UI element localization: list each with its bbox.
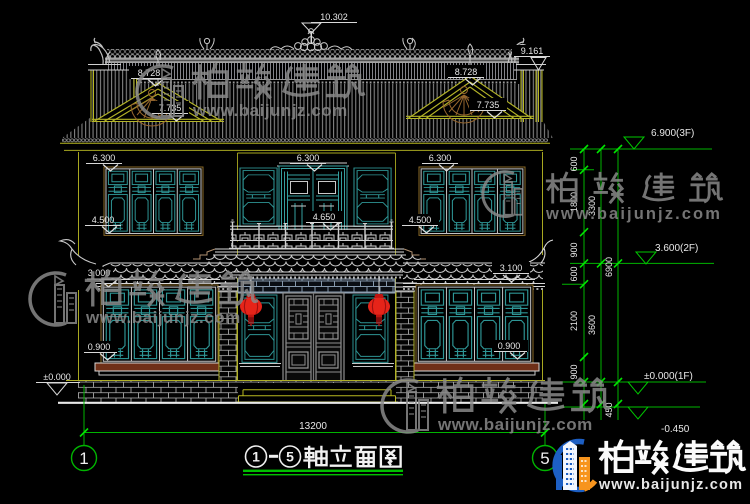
svg-text:6.300: 6.300 (93, 153, 116, 163)
svg-text:±0.000(1F): ±0.000(1F) (644, 371, 693, 382)
svg-text:3.600(2F): 3.600(2F) (655, 243, 698, 254)
svg-text:13200: 13200 (299, 421, 327, 432)
svg-text:www.baijunjz.com: www.baijunjz.com (545, 205, 722, 223)
svg-text:7.735: 7.735 (477, 100, 500, 110)
svg-text:±0.000: ±0.000 (43, 372, 70, 382)
svg-text:9.161: 9.161 (521, 46, 544, 56)
svg-text:www.baijunjz.com: www.baijunjz.com (598, 477, 743, 493)
svg-text:4.500: 4.500 (409, 215, 432, 225)
svg-text:4.500: 4.500 (92, 215, 115, 225)
svg-text:6.300: 6.300 (429, 153, 452, 163)
svg-text:5: 5 (286, 449, 294, 465)
svg-text:3.100: 3.100 (500, 263, 523, 273)
svg-text:5: 5 (540, 449, 549, 468)
svg-text:0.900: 0.900 (88, 342, 111, 352)
svg-text:1: 1 (79, 449, 88, 468)
svg-text:900: 900 (569, 364, 579, 379)
svg-text:4.650: 4.650 (313, 212, 336, 222)
svg-text:6900: 6900 (604, 257, 614, 277)
svg-text:8.728: 8.728 (455, 67, 478, 77)
svg-text:600: 600 (569, 156, 579, 171)
svg-text:2100: 2100 (569, 311, 579, 331)
svg-text:3600: 3600 (587, 315, 597, 335)
svg-text:900: 900 (569, 242, 579, 257)
svg-text:600: 600 (569, 266, 579, 281)
svg-text:10.302: 10.302 (320, 12, 348, 22)
svg-text:6.900(3F): 6.900(3F) (651, 128, 694, 139)
svg-text:1: 1 (252, 449, 260, 465)
svg-text:0.900: 0.900 (498, 341, 521, 351)
svg-text:6.300: 6.300 (297, 153, 320, 163)
svg-text:-0.450: -0.450 (661, 424, 690, 435)
